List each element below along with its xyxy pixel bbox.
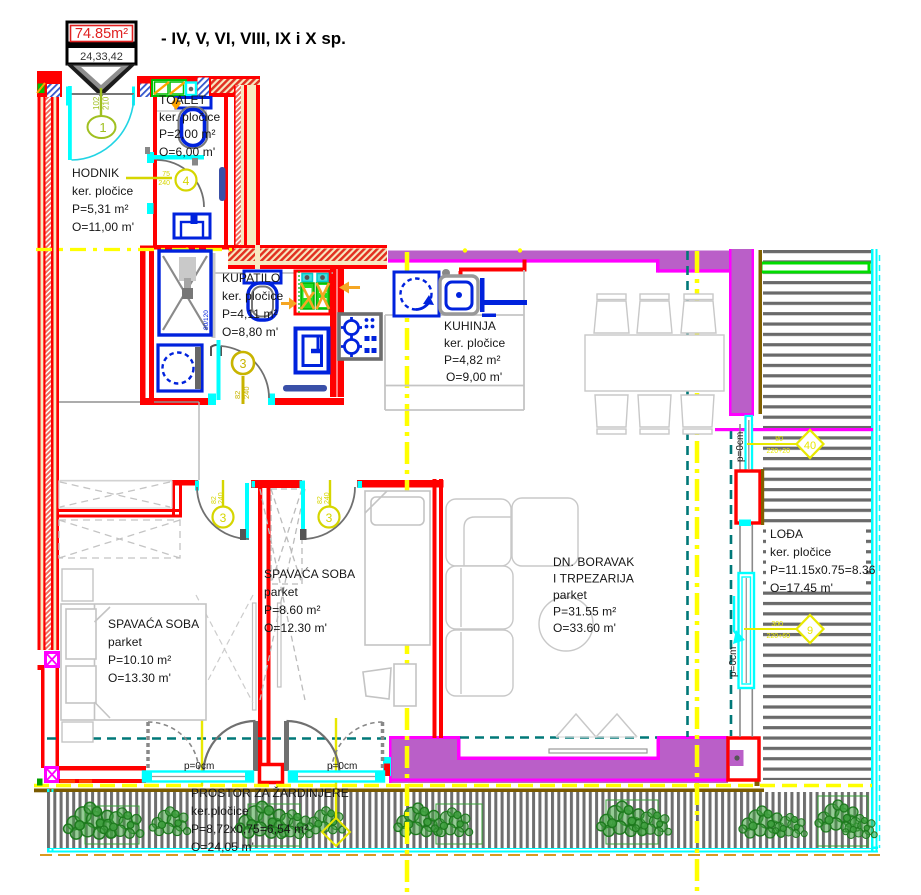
svg-text:82: 82 xyxy=(233,391,242,399)
svg-text:parket: parket xyxy=(553,588,588,602)
svg-text:210: 210 xyxy=(102,96,111,110)
svg-text:p=0cm: p=0cm xyxy=(728,647,739,677)
svg-text:24,33,42: 24,33,42 xyxy=(80,51,123,63)
svg-text:p=0cm: p=0cm xyxy=(735,432,746,462)
svg-text:240: 240 xyxy=(218,492,225,504)
svg-text:P=11.15x0.75=8.36: P=11.15x0.75=8.36 xyxy=(770,563,876,577)
svg-text:KUHINJA: KUHINJA xyxy=(444,319,496,333)
svg-text:P=10.10 m²: P=10.10 m² xyxy=(108,653,171,667)
svg-text:ker.pločice: ker.pločice xyxy=(191,804,249,818)
svg-text:O=9,00 m': O=9,00 m' xyxy=(446,370,502,384)
svg-text:parket: parket xyxy=(264,585,299,599)
svg-text:LOĐA: LOĐA xyxy=(770,527,803,541)
svg-text:75: 75 xyxy=(162,171,170,178)
svg-text:82: 82 xyxy=(211,496,218,504)
svg-text:O=17.45 m': O=17.45 m' xyxy=(770,581,833,595)
svg-text:O=12.30 m': O=12.30 m' xyxy=(264,621,327,635)
svg-text:220+20: 220+20 xyxy=(766,448,790,455)
svg-text:O=6,00 m': O=6,00 m' xyxy=(159,145,215,159)
svg-text:HODNIK: HODNIK xyxy=(72,166,119,180)
svg-text:P=5,31 m²: P=5,31 m² xyxy=(72,202,129,216)
svg-text:O=33.60 m': O=33.60 m' xyxy=(553,621,616,635)
svg-text:9: 9 xyxy=(807,625,813,637)
svg-text:80: 80 xyxy=(775,436,783,443)
svg-text:O=24,05 m': O=24,05 m' xyxy=(191,840,254,854)
svg-text:ker. pločice: ker. pločice xyxy=(159,110,220,124)
svg-text:220+60: 220+60 xyxy=(766,633,790,640)
svg-text:3: 3 xyxy=(326,511,333,525)
svg-text:ker. pločice: ker. pločice xyxy=(72,184,133,198)
svg-text:O=11,00 m': O=11,00 m' xyxy=(72,220,134,234)
svg-text:240: 240 xyxy=(242,386,251,399)
svg-text:P=2,00 m²: P=2,00 m² xyxy=(159,127,216,141)
svg-text:- IV, V, VI, VIII, IX i X sp.: - IV, V, VI, VIII, IX i X sp. xyxy=(161,29,346,48)
svg-text:74.85m²: 74.85m² xyxy=(75,26,128,42)
svg-text:P=8.60 m²: P=8.60 m² xyxy=(264,603,321,617)
svg-text:DN. BORAVAK: DN. BORAVAK xyxy=(553,555,634,569)
svg-text:240: 240 xyxy=(158,180,170,187)
svg-text:102: 102 xyxy=(92,96,101,110)
svg-text:P=4,11 m²: P=4,11 m² xyxy=(222,307,278,321)
svg-text:3: 3 xyxy=(240,357,247,371)
svg-text:I TRPEZARIJA: I TRPEZARIJA xyxy=(553,572,634,586)
svg-text:SPAVAĆA SOBA: SPAVAĆA SOBA xyxy=(264,566,355,581)
svg-text:P=4,82 m²: P=4,82 m² xyxy=(444,353,501,367)
svg-text:p=0cm: p=0cm xyxy=(327,761,357,772)
svg-text:O=8,80 m': O=8,80 m' xyxy=(222,325,278,339)
svg-text:O=13.30 m': O=13.30 m' xyxy=(108,671,171,685)
svg-text:240: 240 xyxy=(324,492,331,504)
svg-text:P=31.55 m²: P=31.55 m² xyxy=(553,605,616,619)
svg-text:300: 300 xyxy=(771,621,783,628)
svg-text:4: 4 xyxy=(183,174,190,188)
svg-text:SPAVAĆA SOBA: SPAVAĆA SOBA xyxy=(108,616,199,631)
svg-text:80/120: 80/120 xyxy=(203,310,210,330)
svg-text:ker. pločice: ker. pločice xyxy=(444,336,505,350)
svg-text:P=8,72x0,75=6,54 m²: P=8,72x0,75=6,54 m² xyxy=(191,822,308,836)
svg-text:40: 40 xyxy=(804,440,816,452)
svg-text:ker. pločice: ker. pločice xyxy=(222,289,283,303)
svg-text:PROSTOR ZA ŽARDINJERE: PROSTOR ZA ŽARDINJERE xyxy=(191,785,349,800)
svg-text:parket: parket xyxy=(108,635,143,649)
svg-text:KUPATILO: KUPATILO xyxy=(222,271,280,285)
svg-text:TOALET: TOALET xyxy=(159,93,207,107)
svg-text:82: 82 xyxy=(317,496,324,504)
svg-text:p=0cm: p=0cm xyxy=(184,761,214,772)
svg-text:ker. pločice: ker. pločice xyxy=(770,545,831,559)
svg-text:1: 1 xyxy=(99,120,106,135)
svg-text:3: 3 xyxy=(220,511,227,525)
